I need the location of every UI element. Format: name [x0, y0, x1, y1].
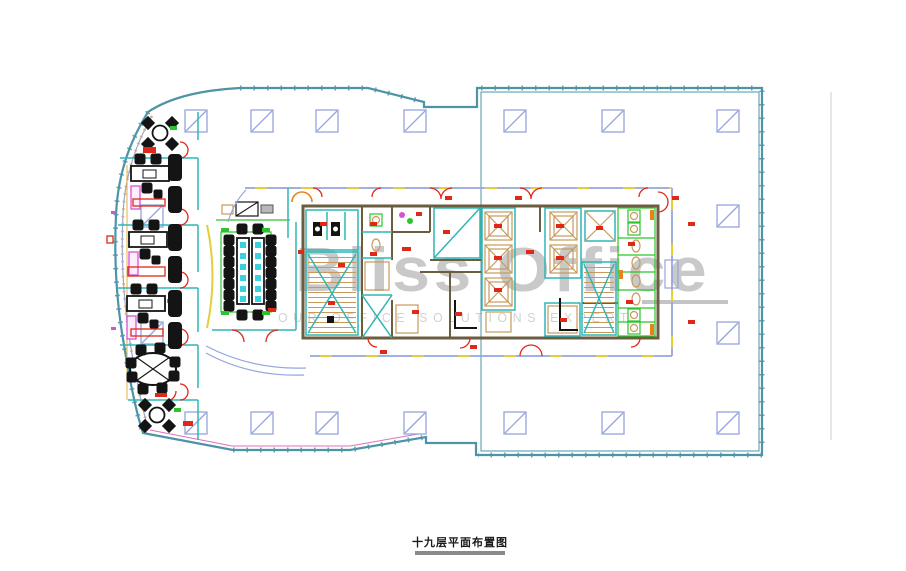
dim-tick — [111, 327, 116, 330]
stair-1 — [306, 252, 358, 335]
drawing-title: 十九层平面布置图 — [380, 536, 540, 550]
dim-tick — [111, 211, 116, 214]
axis-letter-mark — [107, 236, 113, 243]
conference-table — [237, 238, 264, 304]
cad-floor-plan-canvas: Bliss Office OUR OFFICE SOLUTIONS EXPERT — [0, 0, 906, 571]
title-underline — [415, 551, 505, 555]
conference-door-arcs — [232, 330, 278, 342]
round-table-room-top — [141, 116, 179, 153]
oval-meeting-room — [126, 343, 181, 402]
entrance-double-door — [292, 192, 312, 202]
conference-chairs — [224, 224, 277, 321]
stair-2 — [582, 262, 616, 335]
cleaning-room — [399, 212, 422, 224]
floor-plan-svg: Bliss Office OUR OFFICE SOLUTIONS EXPERT — [0, 0, 906, 571]
office-room-2 — [128, 220, 182, 284]
conference-credenza — [216, 202, 290, 220]
office-room-1 — [131, 154, 182, 214]
drawing-title-block: 十九层平面布置图 — [380, 536, 540, 555]
